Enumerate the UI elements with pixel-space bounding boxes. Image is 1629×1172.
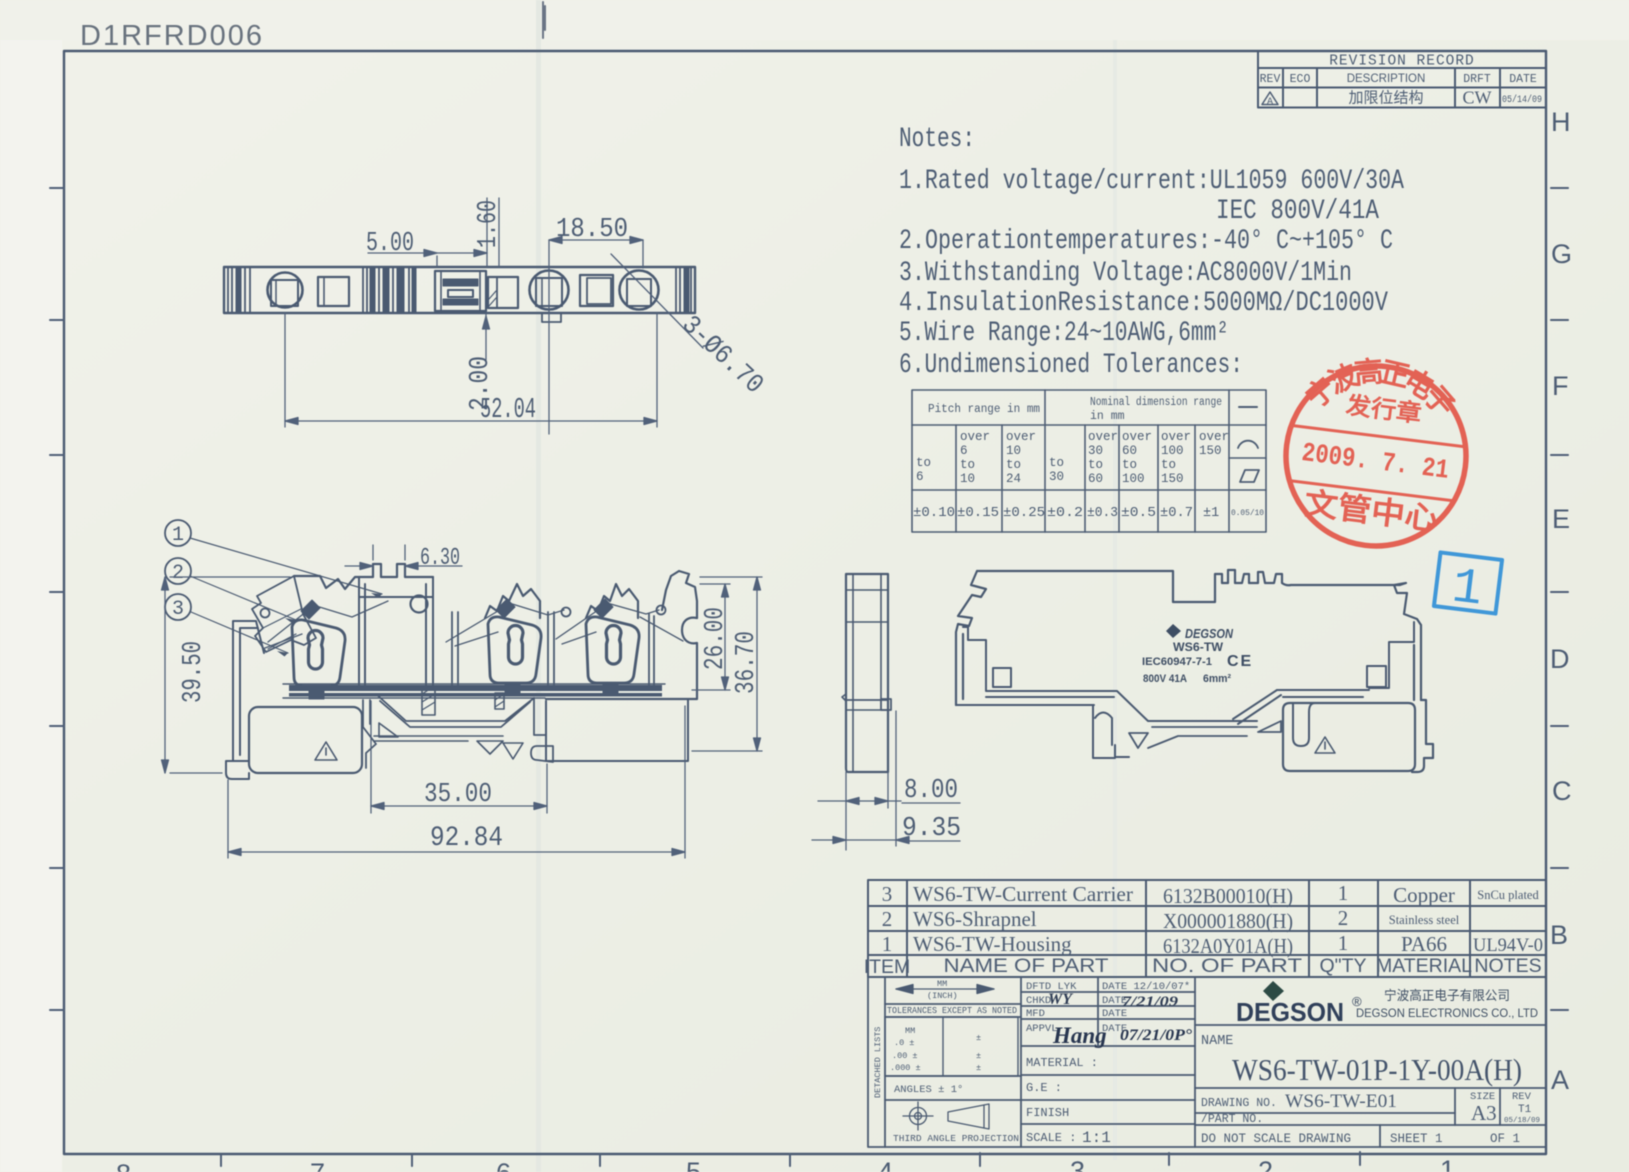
svg-text:05/18/09: 05/18/09 [1504,1117,1540,1125]
svg-text:26.00: 26.00 [701,607,731,670]
svg-text:3: 3 [882,882,893,906]
svg-text:WY: WY [1048,991,1073,1008]
svg-text:6.30: 6.30 [420,545,460,572]
svg-text:MATERIAL :: MATERIAL : [1026,1056,1098,1070]
svg-text:WS6-TW: WS6-TW [1173,642,1223,654]
svg-text:±: ± [976,1063,981,1073]
svg-text:2: 2 [1338,906,1349,930]
svg-text:T1: T1 [1518,1104,1532,1116]
svg-text:ANGLES ± 1°: ANGLES ± 1° [894,1084,963,1096]
svg-text:UL94V-0: UL94V-0 [1473,935,1543,956]
svg-text:35.00: 35.00 [424,780,492,810]
svg-text:±0.2: ±0.2 [1047,506,1083,521]
svg-text:1: 1 [1440,1155,1455,1172]
svg-text:E: E [1552,504,1570,534]
svg-text:A: A [1267,97,1273,108]
svg-text:±0.7: ±0.7 [1160,506,1193,521]
svg-text:加限位结构: 加限位结构 [1348,90,1423,107]
svg-text:2: 2 [1258,1156,1273,1172]
svg-text:92.84: 92.84 [430,823,503,854]
svg-text:DESCRIPTION: DESCRIPTION [1347,73,1426,85]
svg-text:ITEM: ITEM [864,956,911,978]
svg-text:7: 7 [310,1158,325,1172]
svg-text:150: 150 [1161,472,1184,486]
svg-text:DEGSON: DEGSON [1236,997,1344,1027]
svg-text:DATE: DATE [1102,1008,1127,1020]
svg-text:9.35: 9.35 [902,814,961,844]
svg-text:8.00: 8.00 [904,776,958,806]
svg-text:DEGSON ELECTRONICS CO., LTD: DEGSON ELECTRONICS CO., LTD [1356,1006,1538,1020]
svg-text:to: to [1006,458,1021,472]
svg-text:10: 10 [960,472,975,486]
svg-text:5.00: 5.00 [366,229,414,259]
svg-text:Q"TY: Q"TY [1319,955,1366,977]
svg-text:CW: CW [1463,88,1492,108]
svg-text:CE: CE [1227,653,1253,670]
svg-text:MATERIAL: MATERIAL [1376,955,1472,977]
svg-text:over: over [1006,430,1036,444]
svg-text:.0 ±: .0 ± [894,1038,914,1048]
svg-text:1: 1 [882,932,893,956]
svg-text:PA66: PA66 [1401,932,1447,956]
svg-text:IEC60947-7-1: IEC60947-7-1 [1142,656,1212,668]
svg-text:18.50: 18.50 [556,215,628,245]
svg-text:Nominal dimension range: Nominal dimension range [1090,396,1222,409]
svg-text:1: 1 [172,524,184,547]
svg-text:MM: MM [905,1026,915,1036]
svg-text:NAME: NAME [1201,1034,1233,1049]
svg-text:NAME OF PART: NAME OF PART [944,955,1109,977]
svg-text:DO NOT SCALE DRAWING: DO NOT SCALE DRAWING [1201,1132,1351,1146]
svg-text:2: 2 [882,907,893,931]
svg-text:1: 1 [1338,931,1349,955]
svg-text:over: over [960,430,990,444]
svg-text:Stainless steel: Stainless steel [1389,913,1460,927]
svg-text:1:1: 1:1 [1082,1129,1111,1147]
svg-text:G: G [1551,239,1572,269]
svg-text:3: 3 [172,598,184,621]
svg-text:G.E :: G.E : [1026,1081,1062,1095]
svg-text:WS6-TW-Housing: WS6-TW-Housing [913,932,1072,956]
svg-text:D1RFRD006: D1RFRD006 [80,20,264,52]
svg-text:(INCH): (INCH) [927,991,958,1001]
svg-text:0.05/10: 0.05/10 [1231,508,1264,518]
svg-text:±: ± [976,1033,981,1043]
svg-text:WS6-TW-E01: WS6-TW-E01 [1285,1091,1397,1112]
svg-text:to: to [1088,458,1103,472]
svg-text:A: A [1551,1065,1569,1095]
svg-text:6mm²: 6mm² [1203,673,1231,685]
svg-text:THIRD ANGLE PROJECTION: THIRD ANGLE PROJECTION [893,1133,1019,1144]
svg-text:.00 ±: .00 ± [892,1051,918,1061]
svg-text:B: B [1550,920,1568,950]
svg-text:6: 6 [960,444,968,458]
svg-text:2.Operationtemperatures:-40° C: 2.Operationtemperatures:-40° C~+105° C [899,226,1393,257]
svg-text:MFD: MFD [1026,1008,1045,1020]
svg-text:OF 1: OF 1 [1490,1132,1520,1146]
svg-text:30: 30 [1049,470,1064,484]
svg-text:to: to [1122,458,1137,472]
svg-text:5.Wire Range:24~10AWG,6mm²: 5.Wire Range:24~10AWG,6mm² [899,318,1229,349]
svg-text:60: 60 [1122,444,1137,458]
svg-text:.000 ±: .000 ± [890,1063,921,1073]
svg-text:MM: MM [937,979,947,989]
svg-text:D: D [1550,644,1570,674]
svg-text:over: over [1161,430,1191,444]
svg-text:DRFT: DRFT [1463,73,1491,86]
svg-text:1.Rated voltage/current:UL1059: 1.Rated voltage/current:UL1059 600V/30A [899,166,1404,197]
svg-text:±0.25: ±0.25 [1003,506,1045,521]
svg-text:Notes:: Notes: [899,124,975,155]
svg-text:24: 24 [1006,472,1021,486]
svg-text:to: to [916,456,931,470]
svg-text:DRAWING NO.: DRAWING NO. [1201,1097,1277,1110]
svg-text:39.50: 39.50 [179,641,209,703]
svg-text:REV: REV [1512,1091,1532,1103]
svg-text:TOLERANCES EXCEPT AS NOTED: TOLERANCES EXCEPT AS NOTED [887,1005,1017,1016]
svg-text:WS6-Shrapnel: WS6-Shrapnel [913,907,1037,931]
svg-text:4: 4 [878,1157,893,1172]
svg-text:±0.5: ±0.5 [1121,506,1156,521]
svg-text:60: 60 [1088,472,1103,486]
svg-text:F: F [1552,371,1569,401]
svg-text:5: 5 [686,1157,701,1172]
svg-text:ECO: ECO [1290,73,1311,86]
svg-text:4.InsulationResistance:5000MΩ/: 4.InsulationResistance:5000MΩ/DC1000V [899,288,1388,319]
svg-text:DATE 12/10/07*: DATE 12/10/07* [1102,981,1190,993]
svg-text:±0.3: ±0.3 [1087,506,1118,521]
svg-text:800V 41A: 800V 41A [1143,673,1187,685]
svg-text:±0.10: ±0.10 [913,506,955,521]
svg-text:C: C [1552,776,1572,806]
svg-text:A3: A3 [1471,1101,1497,1125]
svg-text:SCALE :: SCALE : [1026,1131,1076,1145]
svg-text:/PART NO.: /PART NO. [1201,1113,1263,1126]
svg-text:to: to [1161,458,1176,472]
svg-text:WS6-TW-01P-1Y-00A(H): WS6-TW-01P-1Y-00A(H) [1232,1052,1522,1087]
svg-text:07/21/0P°: 07/21/0P° [1120,1027,1193,1044]
svg-text:in mm: in mm [1090,410,1125,423]
svg-text:05/14/09: 05/14/09 [1502,94,1542,106]
svg-text:2.00: 2.00 [466,356,496,411]
svg-text:to: to [960,458,975,472]
svg-text:Pitch range in mm: Pitch range in mm [928,403,1040,416]
svg-text:REV: REV [1260,73,1281,86]
svg-text:6.Undimensioned Tolerances:: 6.Undimensioned Tolerances: [899,350,1243,381]
svg-text:100: 100 [1122,472,1145,486]
svg-text:6: 6 [496,1158,511,1172]
svg-text:宁波高正电子有限公司: 宁波高正电子有限公司 [1384,988,1510,1003]
svg-text:1.60: 1.60 [474,200,504,248]
svg-text:±: ± [976,1051,981,1061]
svg-text:over: over [1122,430,1152,444]
svg-text:1: 1 [1338,881,1349,905]
svg-text:WS6-TW-Current Carrier: WS6-TW-Current Carrier [913,882,1133,906]
svg-text:6132B00010(H): 6132B00010(H) [1163,884,1293,908]
svg-text:FINISH: FINISH [1026,1106,1069,1120]
svg-text:DATE: DATE [1509,73,1537,86]
svg-text:Hang: Hang [1052,1023,1107,1048]
svg-text:150: 150 [1199,444,1222,458]
svg-text:Copper: Copper [1393,883,1455,907]
svg-text:6: 6 [916,470,924,484]
svg-text:30: 30 [1088,444,1103,458]
svg-text:10: 10 [1006,444,1021,458]
svg-text:SHEET 1: SHEET 1 [1390,1132,1443,1146]
svg-text:H: H [1551,107,1571,137]
svg-text:NO. OF PART: NO. OF PART [1152,955,1302,977]
svg-text:X000001880(H): X000001880(H) [1163,909,1293,933]
svg-text:over: over [1088,430,1118,444]
svg-text:IEC 800V/41A: IEC 800V/41A [1216,196,1379,227]
svg-text:to: to [1049,456,1064,470]
svg-text:8: 8 [116,1159,131,1172]
svg-text:SnCu plated: SnCu plated [1477,888,1539,902]
svg-text:DEGSON: DEGSON [1185,626,1234,641]
svg-text:2: 2 [172,562,184,585]
svg-text:7/21/09: 7/21/09 [1122,994,1179,1010]
svg-text:100: 100 [1161,444,1184,458]
svg-text:REVISION RECORD: REVISION RECORD [1329,54,1475,70]
svg-text:DETACHED LISTS: DETACHED LISTS [873,1027,883,1098]
svg-text:over: over [1199,430,1229,444]
svg-text:36.70: 36.70 [732,631,762,694]
svg-text:3.Withstanding Voltage:AC8000V: 3.Withstanding Voltage:AC8000V/1Min [899,258,1352,289]
svg-text:±1: ±1 [1203,506,1219,521]
svg-text:±0.15: ±0.15 [957,506,999,521]
svg-text:3: 3 [1070,1156,1085,1172]
svg-text:NOTES: NOTES [1474,955,1541,977]
